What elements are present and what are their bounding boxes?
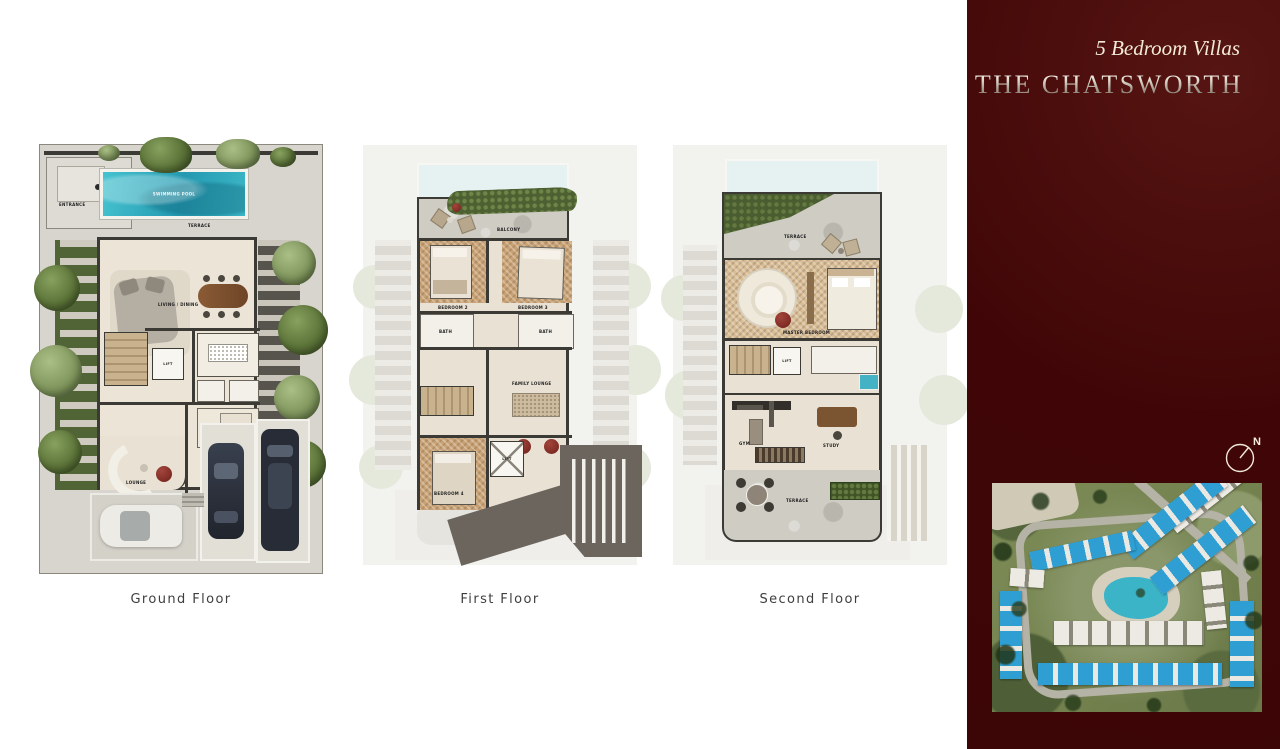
dining-table xyxy=(198,284,248,308)
car-white xyxy=(100,505,182,547)
round-table xyxy=(746,484,768,506)
bathroom xyxy=(229,380,259,402)
pillow xyxy=(433,248,467,257)
bed xyxy=(827,268,877,330)
lift-label: LIFT xyxy=(163,362,173,366)
lift-label: LIFT xyxy=(502,457,512,461)
floor-label-second: Second Floor xyxy=(665,592,955,607)
pergola-roof xyxy=(560,445,642,557)
family-label: FAMILY LOUNGE xyxy=(512,381,551,386)
page-subtitle: 5 Bedroom Villas xyxy=(1095,36,1240,61)
dresser xyxy=(807,272,814,324)
car-dark xyxy=(208,443,244,539)
interior-wall xyxy=(192,328,195,405)
tree xyxy=(270,147,296,167)
second-floor-plan: TERRACE MASTER BEDROOM LIFT GYM STUDY xyxy=(665,145,955,573)
floor-block: BEDROOM 2 BEDROOM 3 BATH BATH BEDROOM 4 … xyxy=(417,238,569,510)
interior-wall xyxy=(100,402,260,405)
ghost-tree xyxy=(915,285,963,333)
ground-floor-plan: ENTRANCE SWIMMING POOL TERRACE LIVING / … xyxy=(40,145,322,573)
jacuzzi xyxy=(859,374,879,390)
terrace-table xyxy=(838,248,844,254)
porch-steps xyxy=(182,493,204,507)
first-floor-plan: BALCONY BEDROOM 2 BEDROOM 3 BATH BATH xyxy=(355,145,645,573)
lift: LIFT xyxy=(490,441,524,477)
sidebar-panel: 5 Bedroom Villas THE CHATSWORTH N xyxy=(967,0,1280,749)
lift: LIFT xyxy=(773,347,801,375)
tree xyxy=(98,145,120,161)
hall-row: LIFT xyxy=(722,338,882,395)
car-dark xyxy=(261,429,299,551)
terrace-table xyxy=(447,217,453,223)
red-armchair xyxy=(544,439,559,454)
gym-label: GYM xyxy=(739,441,750,446)
lounge-label: LOUNGE xyxy=(126,480,146,485)
balcony-label: BALCONY xyxy=(497,227,520,232)
bath-label: BATH xyxy=(539,329,552,334)
floor-label-ground: Ground Floor xyxy=(40,592,322,607)
lounge-room: LOUNGE xyxy=(100,436,187,490)
tree xyxy=(30,345,82,397)
headboard xyxy=(828,269,874,276)
bed xyxy=(432,451,476,505)
family-sofa xyxy=(512,393,560,417)
pillow xyxy=(832,278,848,287)
page-title: THE CHATSWORTH xyxy=(975,70,1243,100)
tree xyxy=(34,265,80,311)
interior-wall xyxy=(420,347,572,350)
green-roof-hedge xyxy=(447,187,578,216)
dining-chair xyxy=(203,275,210,282)
bedroom2-label: BEDROOM 2 xyxy=(438,305,468,310)
ghost-slats xyxy=(593,240,629,450)
living-label: LIVING / DINING xyxy=(158,302,198,307)
wardrobe-band xyxy=(420,353,472,379)
rattan-chair xyxy=(842,238,860,256)
swimming-pool: SWIMMING POOL xyxy=(100,169,248,219)
ghost-slats xyxy=(683,245,717,465)
roof-terrace: TERRACE xyxy=(722,192,882,260)
red-armchair xyxy=(156,466,172,482)
barbell xyxy=(769,401,774,427)
gym-bench xyxy=(749,419,763,445)
tree xyxy=(140,137,192,173)
red-pot xyxy=(452,203,461,212)
terrace2-label: TERRACE xyxy=(786,498,809,503)
car-roof xyxy=(268,463,292,509)
terrace-label: TERRACE xyxy=(784,234,807,239)
bed xyxy=(517,246,565,300)
car-rear-window xyxy=(214,511,238,523)
pillow xyxy=(435,454,471,463)
red-armchair xyxy=(775,312,791,328)
lift-label: LIFT xyxy=(782,359,792,363)
roof-terrace-lower: TERRACE xyxy=(722,470,882,542)
entrance-label: ENTRANCE xyxy=(59,202,85,207)
stairs xyxy=(729,345,771,375)
aerial-site-map xyxy=(992,483,1262,712)
ghost-louvre-panel xyxy=(887,445,929,541)
interior-wall xyxy=(420,435,572,438)
bedroom4-label: BEDROOM 4 xyxy=(434,491,464,496)
tree xyxy=(278,305,328,355)
lift: LIFT xyxy=(152,348,184,380)
terrace-chair xyxy=(736,478,746,488)
study-desk xyxy=(817,407,857,427)
kitchen xyxy=(197,333,259,377)
car-windshield xyxy=(214,463,238,479)
pillow xyxy=(854,278,870,287)
bathroom: BATH xyxy=(420,314,474,349)
floor-label-first: First Floor xyxy=(355,592,645,607)
compass-north-label: N xyxy=(1253,436,1261,448)
bed-throw xyxy=(433,280,467,294)
bathroom xyxy=(811,346,877,374)
car-windows xyxy=(120,511,150,541)
master-suite: MASTER BEDROOM xyxy=(722,260,882,338)
pool-label: SWIMMING POOL xyxy=(153,192,195,197)
car-windshield xyxy=(267,445,293,457)
stairs xyxy=(104,332,148,386)
tree xyxy=(272,241,316,285)
hedge-strip xyxy=(830,482,880,500)
tree xyxy=(216,139,260,169)
ghost-slats xyxy=(375,240,411,470)
pergola-slats xyxy=(572,459,630,543)
barbell xyxy=(737,405,763,410)
master-label: MASTER BEDROOM xyxy=(783,330,830,335)
hedge xyxy=(724,194,834,234)
gym-study-row: GYM STUDY xyxy=(722,395,882,470)
interior-wall xyxy=(145,328,260,331)
compass-icon: N xyxy=(1223,432,1269,478)
tree xyxy=(38,430,82,474)
interior-wall xyxy=(486,241,489,303)
bed xyxy=(430,245,472,299)
study-label: STUDY xyxy=(823,443,839,448)
kitchen-island xyxy=(208,344,248,362)
map-trees-overlay xyxy=(992,483,1262,712)
interior-wall xyxy=(486,350,489,513)
side-table xyxy=(140,464,148,472)
bath-label: BATH xyxy=(439,329,452,334)
bathroom xyxy=(197,380,225,402)
pillow xyxy=(523,249,561,259)
bookshelf xyxy=(755,447,805,463)
bedroom3-label: BEDROOM 3 xyxy=(518,305,548,310)
ghost-tree xyxy=(919,375,969,425)
desk-chair xyxy=(833,431,842,440)
bathroom: BATH xyxy=(518,314,574,349)
tree xyxy=(274,375,320,421)
stairs xyxy=(420,386,474,416)
terrace-label: TERRACE xyxy=(188,223,211,228)
brochure-page: { "header": { "subtitle": "5 Bedroom Vil… xyxy=(0,0,1280,749)
